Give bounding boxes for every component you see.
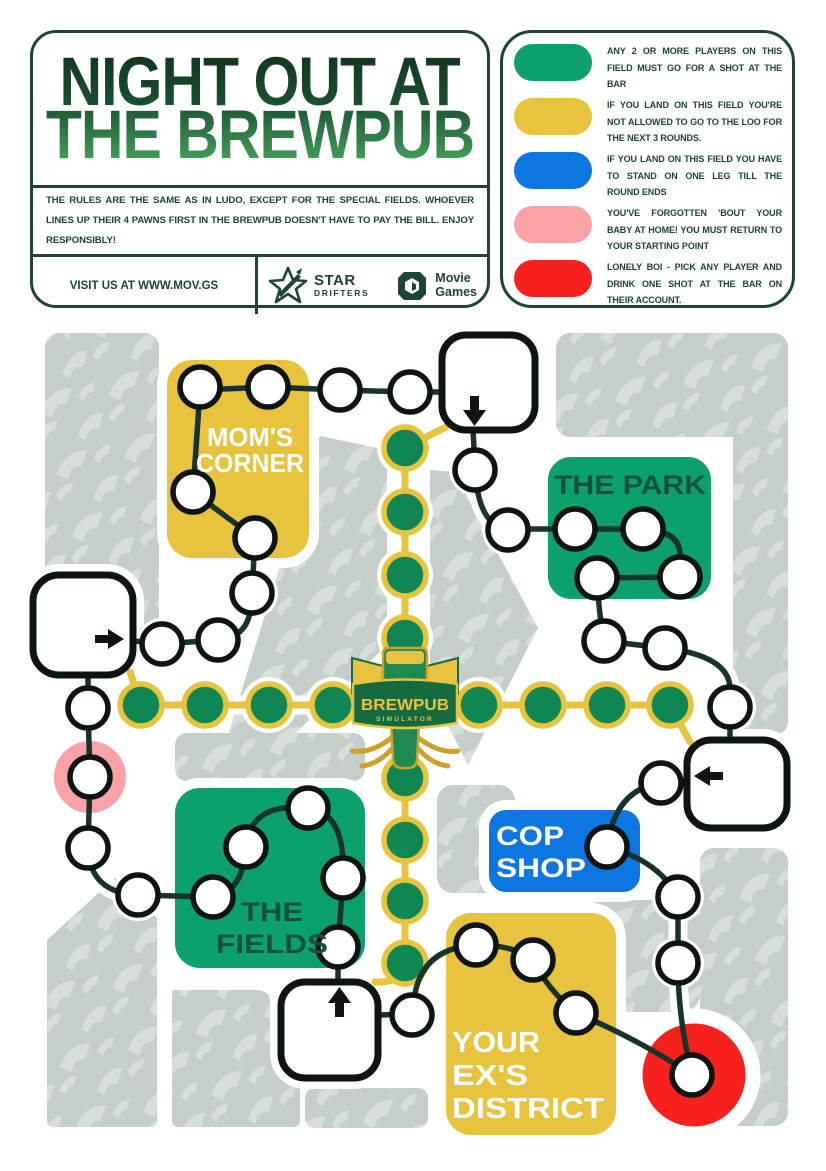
logo-title: BREWPUB xyxy=(361,697,449,714)
svg-text:SHOP: SHOP xyxy=(496,853,586,883)
title-line-2: THE BREWPUB xyxy=(46,105,474,167)
walk-field-circle xyxy=(577,558,617,598)
walk-field-circle xyxy=(226,827,266,867)
svg-text:CORNER: CORNER xyxy=(196,448,304,478)
brew-track-field-circle xyxy=(384,819,426,861)
walk-field-circle xyxy=(70,757,110,797)
brew-track-field-circle xyxy=(384,880,426,922)
brew-track-field-circle xyxy=(384,427,426,469)
zone-title-the-park: THE PARK xyxy=(554,470,707,500)
movie-games-logo-icon xyxy=(395,269,429,303)
walk-field-circle xyxy=(198,620,238,660)
brew-track-field-circle xyxy=(458,684,500,726)
brew-track-field-circle xyxy=(184,684,226,726)
logo-subtitle: SIMULATOR xyxy=(376,716,434,723)
walk-field-circle xyxy=(173,472,213,512)
walk-field-circle xyxy=(455,450,495,490)
start-box-right xyxy=(687,740,787,828)
legend-item-yellow: IF YOU LAND ON THIS FIELD YOU'RE NOT ALL… xyxy=(514,97,782,147)
visit-link[interactable]: VISIT US AT WWW.MOV.GS xyxy=(33,257,258,314)
walk-field-circle xyxy=(193,877,233,917)
brew-track-field-circle xyxy=(522,684,564,726)
walk-field-circle xyxy=(513,940,553,980)
walk-field-circle xyxy=(456,925,496,965)
walk-field-circle xyxy=(660,557,700,597)
start-box-bottom xyxy=(281,982,378,1078)
walk-field-circle xyxy=(323,858,363,898)
zone-title-cop-shop: COP xyxy=(496,821,564,851)
movie-games-logo: Movie Games xyxy=(395,269,477,303)
walk-field-circle xyxy=(623,509,663,549)
zone-title-your-exs: YOUR xyxy=(452,1027,540,1059)
star-drifters-logo: STAR DRIFTERS xyxy=(268,266,369,306)
brew-track-field-circle xyxy=(312,684,354,726)
svg-text:EX'S: EX'S xyxy=(452,1060,528,1092)
walk-field-circle xyxy=(641,763,681,803)
rules-box: THE RULES ARE THE SAME AS IN LUDO, EXCEP… xyxy=(33,185,487,257)
walk-field-circle xyxy=(232,573,272,613)
walk-field-circle xyxy=(68,828,108,868)
brew-track-field-circle xyxy=(586,684,628,726)
zone-title-the-fields: THE xyxy=(241,897,303,927)
walk-field-circle xyxy=(488,510,528,550)
brew-track-field-circle xyxy=(384,554,426,596)
walk-field-circle xyxy=(248,367,288,407)
brew-track-field-circle xyxy=(120,684,162,726)
walk-field-circle xyxy=(142,624,182,664)
walk-field-circle xyxy=(645,628,685,668)
walk-field-circle xyxy=(587,827,627,867)
green-field-swatch xyxy=(514,44,592,81)
walk-field-circle xyxy=(118,875,158,915)
walk-field-circle xyxy=(288,788,328,828)
walk-field-circle xyxy=(68,688,108,728)
walk-field-circle xyxy=(672,1055,712,1095)
pink-field-swatch xyxy=(514,206,592,243)
page-title: NIGHT OUT AT THE BREWPUB xyxy=(33,33,487,185)
brew-track-field-circle xyxy=(649,684,691,726)
start-box-left xyxy=(33,575,133,675)
brewpub-logo-icon: BREWPUB SIMULATOR xyxy=(352,648,458,768)
start-box-top xyxy=(442,335,535,430)
walk-field-circle xyxy=(390,372,430,412)
walk-field-circle xyxy=(658,943,698,983)
walk-field-circle xyxy=(556,993,596,1033)
legend-item-red: LONELY BOI - PICK ANY PLAYER AND DRINK O… xyxy=(514,259,782,309)
walk-field-circle xyxy=(180,367,220,407)
legend-item-blue: IF YOU LAND ON THIS FIELD YOU HAVE TO ST… xyxy=(514,151,782,201)
header-panel: NIGHT OUT AT THE BREWPUB THE RULES ARE T… xyxy=(30,30,490,308)
brew-track-field-circle xyxy=(248,684,290,726)
legend-panel: ANY 2 OR MORE PLAYERS ON THIS FIELD MUST… xyxy=(500,30,795,308)
walk-field-circle xyxy=(584,621,624,661)
red-field-swatch xyxy=(514,260,592,297)
walk-field-circle xyxy=(320,370,360,410)
walk-field-circle xyxy=(235,518,275,558)
legend-item-green: ANY 2 OR MORE PLAYERS ON THIS FIELD MUST… xyxy=(514,43,782,93)
brew-track-field-circle xyxy=(384,491,426,533)
svg-text:FIELDS: FIELDS xyxy=(216,929,328,959)
walk-field-circle xyxy=(392,995,432,1035)
yellow-field-swatch xyxy=(514,98,592,135)
walk-field-circle xyxy=(555,509,595,549)
star-drifters-logo-icon xyxy=(268,266,308,306)
svg-text:DISTRICT: DISTRICT xyxy=(452,1093,604,1125)
legend-item-pink: YOU'VE FORGOTTEN 'BOUT YOUR BABY AT HOME… xyxy=(514,205,782,255)
blue-field-swatch xyxy=(514,152,592,189)
rules-text: THE RULES ARE THE SAME AS IN LUDO, EXCEP… xyxy=(46,191,474,251)
walk-field-circle xyxy=(710,687,750,727)
walk-field-circle xyxy=(658,877,698,917)
